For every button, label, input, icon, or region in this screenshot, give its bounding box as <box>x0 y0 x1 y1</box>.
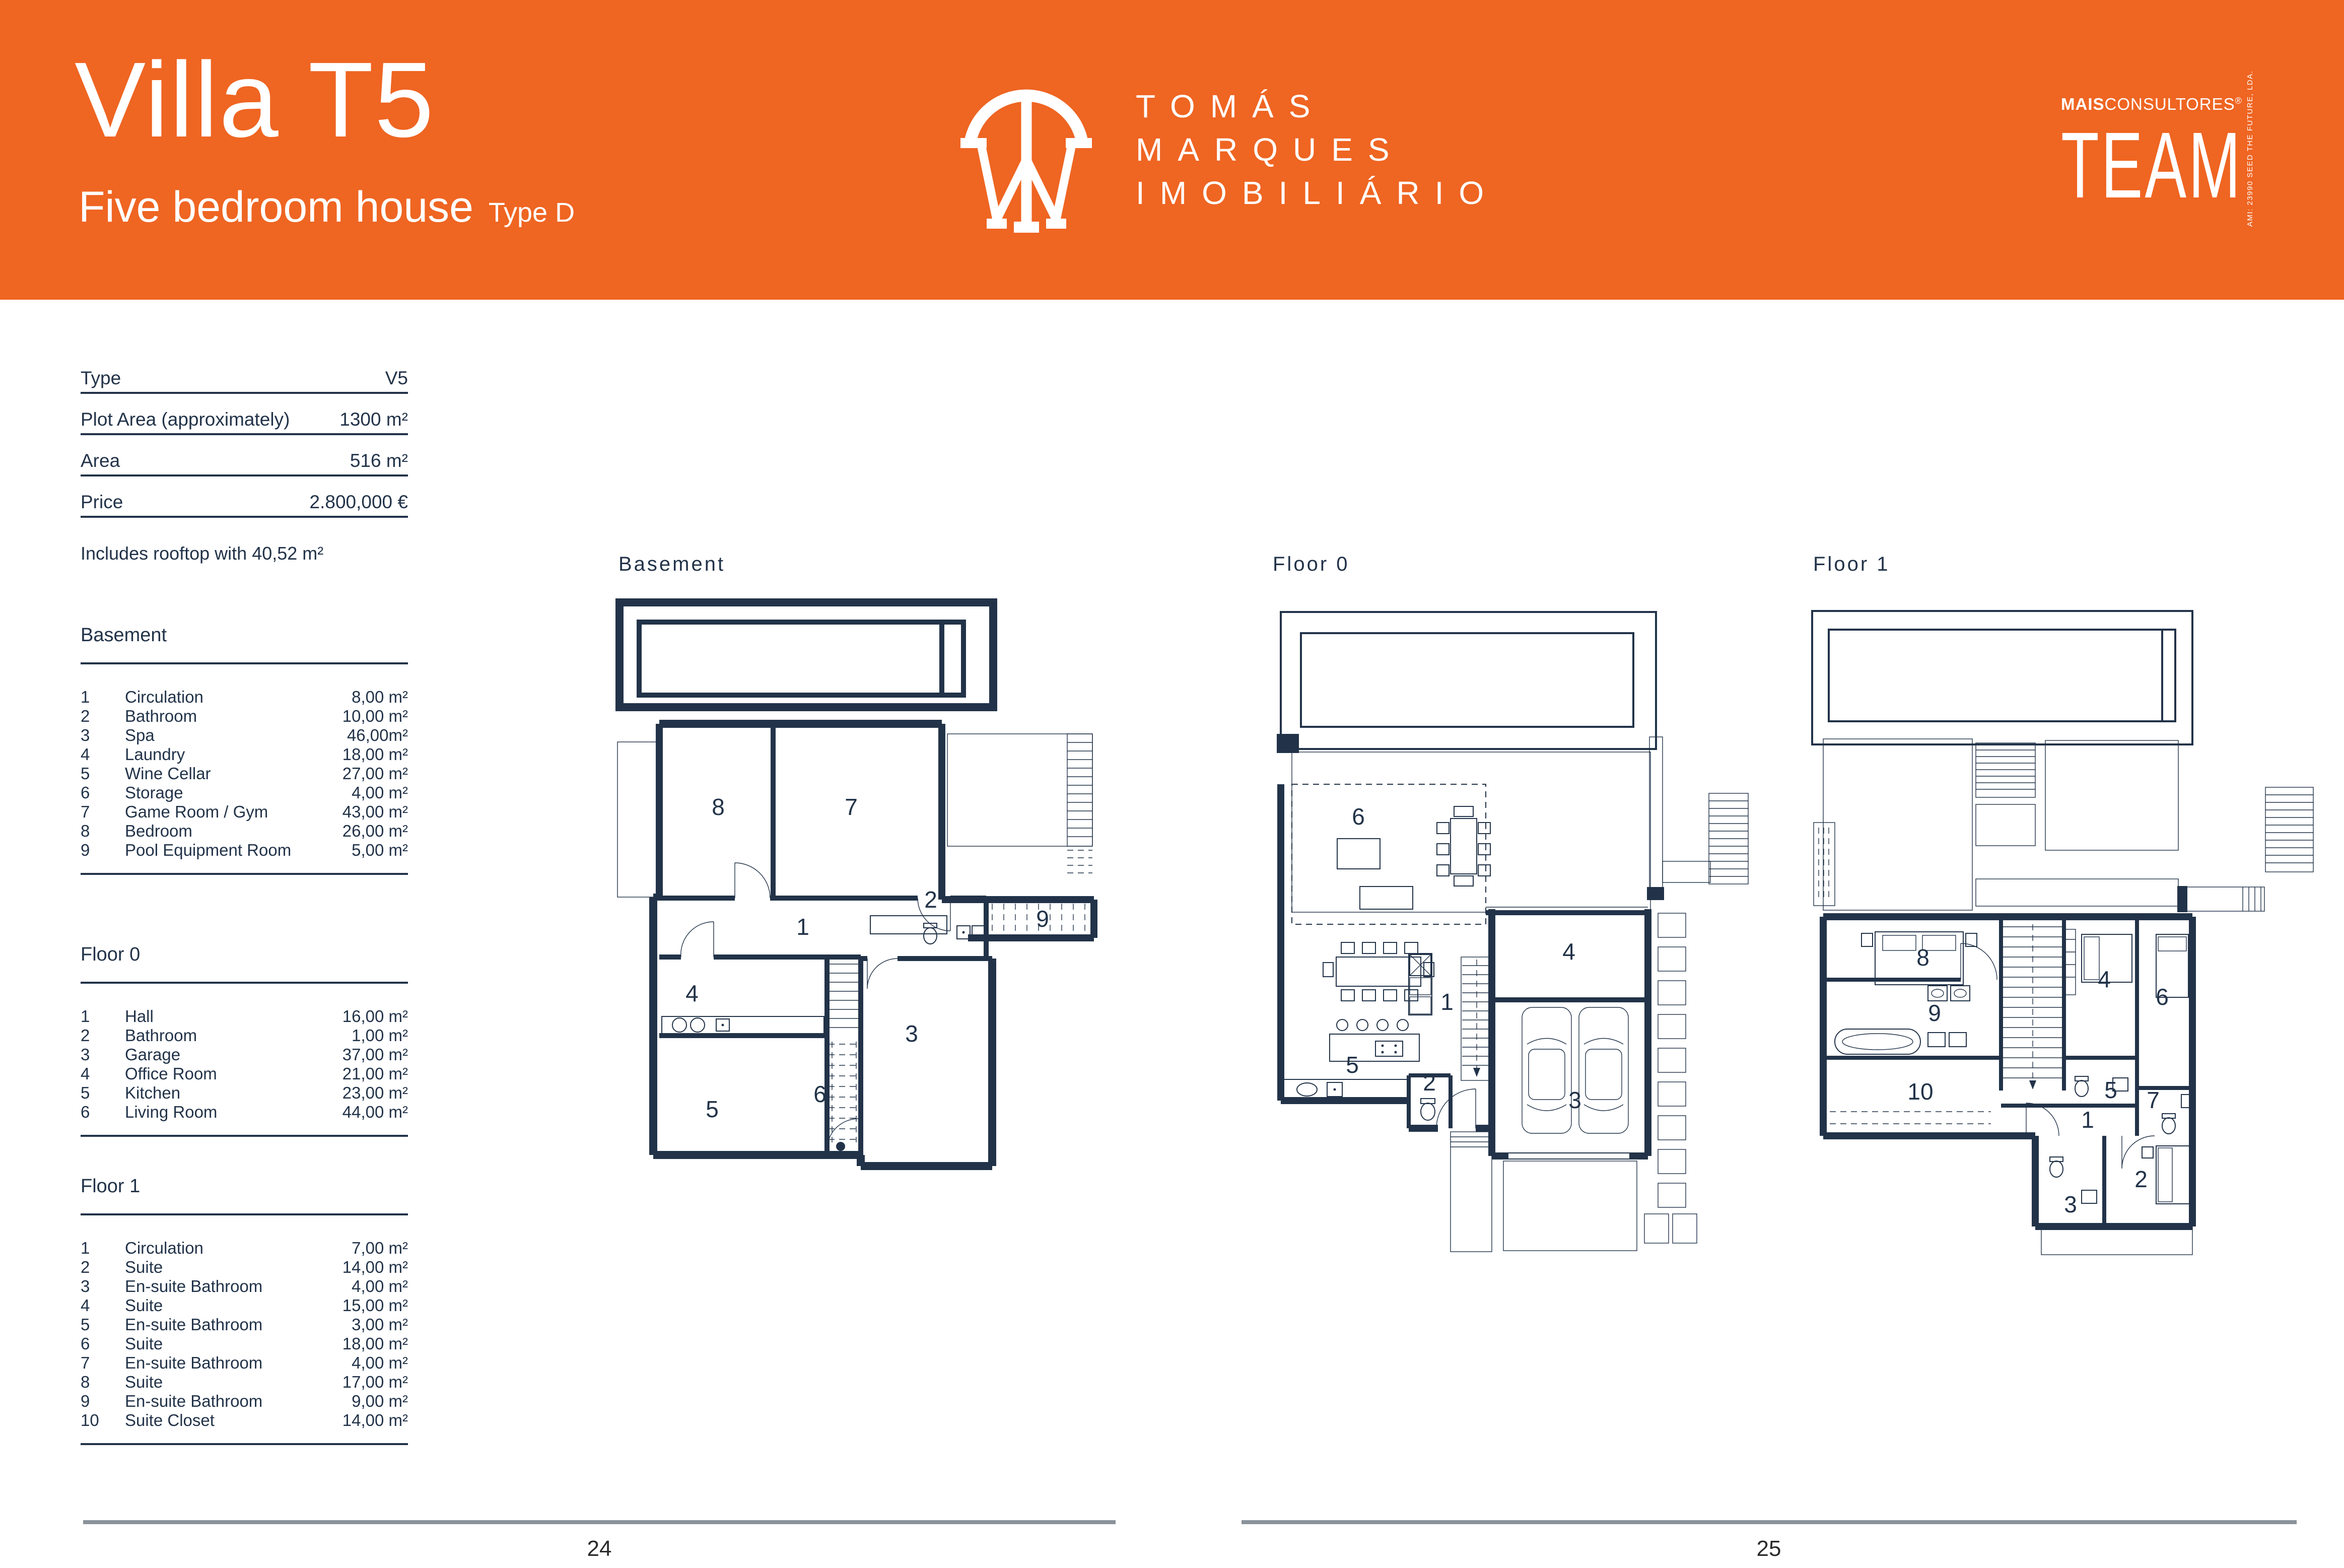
room-name: Kitchen <box>125 1083 342 1103</box>
room-row: 9 Pool Equipment Room 5,00 m² <box>81 841 408 860</box>
info-row: Plot Area (approximately) 1300 m² <box>81 394 408 435</box>
room-name: Hall <box>125 1007 342 1026</box>
room-number: 2 <box>81 1258 125 1277</box>
room-area: 16,00 m² <box>342 1007 408 1026</box>
room-number-label: 10 <box>1907 1078 1933 1105</box>
closet10 <box>1830 1112 1991 1124</box>
room-number-label: 8 <box>712 794 725 820</box>
room-number: 9 <box>81 841 125 860</box>
bathroom9-fixtures <box>1835 986 1970 1054</box>
room-number-label: 4 <box>685 980 699 1006</box>
stairs-icon <box>2003 924 2062 1089</box>
room-name: Suite <box>125 1258 342 1277</box>
floor0-room-list: 1 Hall 16,00 m² 2 Bathroom 1,00 m² 3 Gar… <box>81 1007 408 1137</box>
pool <box>1812 611 2192 744</box>
room-number: 1 <box>81 688 125 707</box>
room-number: 2 <box>81 1026 125 1045</box>
room-name: En-suite Bathroom <box>125 1353 352 1373</box>
floor0-floor-plan: 123456 <box>1277 607 1803 1282</box>
stairs-icon <box>827 957 861 1155</box>
room-area: 14,00 m² <box>342 1258 408 1277</box>
ami-vertical-text: AMI: 23990 SEED THE FUTURE, LDA. <box>2246 121 2254 227</box>
info-value: 1300 m² <box>339 409 408 430</box>
room-name: Spa <box>125 726 347 745</box>
room-name: En-suite Bathroom <box>125 1392 352 1411</box>
room-area: 15,00 m² <box>342 1296 408 1315</box>
room-number-label: 7 <box>2147 1087 2160 1113</box>
basement-room-list: 1 Circulation 8,00 m² 2 Bathroom 10,00 m… <box>81 688 408 875</box>
bathroom7-fixtures <box>2162 1095 2190 1134</box>
room-area: 43,00 m² <box>342 802 408 822</box>
room-number: 6 <box>81 1334 125 1353</box>
room-name: Wine Cellar <box>125 764 342 783</box>
room-number: 10 <box>81 1411 125 1430</box>
room-area: 4,00 m² <box>352 1353 408 1373</box>
room-name: Garage <box>125 1045 342 1064</box>
room-area: 46,00m² <box>347 726 408 745</box>
room-number-label: 6 <box>813 1081 826 1107</box>
page-subtitle: Five bedroom houseType D <box>79 185 575 229</box>
room-name: Laundry <box>125 745 342 764</box>
room-name: Suite <box>125 1334 342 1353</box>
section-floor0-title: Floor 0 <box>81 944 408 984</box>
section-basement: Basement 1 Circulation 8,00 m² 2 Bathroo… <box>81 625 408 875</box>
room-number-label: 1 <box>1440 989 1454 1015</box>
room-row: 8 Suite 17,00 m² <box>81 1373 408 1392</box>
info-value: 516 m² <box>350 450 408 471</box>
basement-floor-plan: 123456789 <box>615 598 1099 1188</box>
room-row: 5 Kitchen 23,00 m² <box>81 1083 408 1103</box>
room-name: Suite <box>125 1296 342 1315</box>
room-number-label: 4 <box>1562 938 1575 965</box>
page-number-right: 25 <box>1757 1536 1781 1561</box>
room-number: 6 <box>81 783 125 802</box>
room-number: 4 <box>81 1064 125 1083</box>
basement-plan-title: Basement <box>618 553 725 576</box>
footer-divider-right <box>1242 1520 2297 1524</box>
room-area: 23,00 m² <box>342 1083 408 1103</box>
brand-name: TOMÁS MARQUES IMOBILIÁRIO <box>1136 85 1499 215</box>
brand-line-2: MARQUES <box>1136 128 1499 171</box>
room-area: 8,00 m² <box>352 688 408 707</box>
room-name: Bedroom <box>125 822 342 841</box>
room-row: 5 Wine Cellar 27,00 m² <box>81 764 408 783</box>
room-area: 3,00 m² <box>352 1315 408 1334</box>
stepping-stones <box>1644 913 1697 1243</box>
car-icon <box>1579 1007 1628 1133</box>
room-row: 3 En-suite Bathroom 4,00 m² <box>81 1277 408 1296</box>
room-name: Living Room <box>125 1103 342 1122</box>
terrace-dining-table <box>1437 806 1490 886</box>
room-area: 26,00 m² <box>342 822 408 841</box>
brand-line-1: TOMÁS <box>1136 85 1499 128</box>
section-floor1-title: Floor 1 <box>81 1176 408 1215</box>
partner-name-bold: MAIS <box>2061 95 2105 113</box>
info-label: Plot Area (approximately) <box>81 409 290 430</box>
room-name: Bathroom <box>125 1026 352 1045</box>
room-number-label: 1 <box>2081 1107 2094 1133</box>
left-hatch-terrace <box>617 742 659 897</box>
type-tag: Type D <box>489 197 575 228</box>
room-number-label: 3 <box>905 1020 918 1047</box>
room-area: 37,00 m² <box>342 1045 408 1064</box>
room-number: 4 <box>81 1296 125 1315</box>
room-number-label: 3 <box>1568 1087 1581 1113</box>
room-number: 5 <box>81 1315 125 1334</box>
room-row: 5 En-suite Bathroom 3,00 m² <box>81 1315 408 1334</box>
room-number-label: 8 <box>1916 944 1929 971</box>
room-area: 14,00 m² <box>342 1411 408 1430</box>
page-title: Villa T5 <box>75 46 435 153</box>
living-room <box>1292 784 1486 924</box>
room-name: Suite Closet <box>125 1411 342 1430</box>
floor0-plan-title: Floor 0 <box>1273 553 1350 576</box>
footer-divider-left <box>83 1520 1116 1524</box>
room-row: 4 Office Room 21,00 m² <box>81 1064 408 1083</box>
info-value: 2.800,000 € <box>310 492 408 513</box>
room-number-label: 9 <box>1928 1000 1941 1026</box>
room-number: 1 <box>81 1239 125 1258</box>
room-number-label: 5 <box>1346 1052 1359 1078</box>
info-row: Price 2.800,000 € <box>81 476 408 518</box>
terrace-tiles <box>1814 739 2178 910</box>
room-number: 8 <box>81 822 125 841</box>
room-number: 5 <box>81 1083 125 1103</box>
room-area: 21,00 m² <box>342 1064 408 1083</box>
room-area: 18,00 m² <box>342 745 408 764</box>
header-band: Villa T5 Five bedroom houseType D <box>0 0 2344 300</box>
pool-lightwell <box>619 602 993 707</box>
room-number: 5 <box>81 764 125 783</box>
room-number: 4 <box>81 745 125 764</box>
room-number: 6 <box>81 1103 125 1122</box>
room-number-label: 1 <box>796 914 809 940</box>
room-number-label: 2 <box>924 887 937 913</box>
room-area: 18,00 m² <box>342 1334 408 1353</box>
room-number: 3 <box>81 1045 125 1064</box>
floor1-plan-title: Floor 1 <box>1813 553 1890 576</box>
room-row: 1 Hall 16,00 m² <box>81 1007 408 1026</box>
room-number: 1 <box>81 1007 125 1026</box>
room-name: En-suite Bathroom <box>125 1315 352 1334</box>
room-number-label: 2 <box>1423 1069 1436 1096</box>
room-number-label: 6 <box>2156 984 2169 1010</box>
side-stair-balcony <box>2177 787 2313 912</box>
info-label: Price <box>81 492 123 513</box>
registered-mark-icon: ® <box>2235 96 2242 106</box>
room-number-label: 3 <box>2064 1191 2077 1217</box>
floor1-floor-plan: 12345678910 <box>1810 607 2316 1282</box>
room-row: 2 Suite 14,00 m² <box>81 1258 408 1277</box>
subtitle-text: Five bedroom house <box>79 183 473 231</box>
room-row: 4 Laundry 18,00 m² <box>81 745 408 764</box>
room-number-label: 5 <box>2104 1077 2117 1103</box>
room-number-label: 6 <box>1352 803 1365 830</box>
info-label: Area <box>81 450 120 471</box>
room-row: 7 Game Room / Gym 43,00 m² <box>81 802 408 822</box>
room-number: 3 <box>81 726 125 745</box>
room-row: 3 Spa 46,00m² <box>81 726 408 745</box>
room-number-label: 4 <box>2098 966 2111 992</box>
room-name: Circulation <box>125 1239 352 1258</box>
section-floor1: Floor 1 1 Circulation 7,00 m² 2 Suite 14… <box>81 1176 408 1445</box>
page-number-left: 24 <box>587 1536 612 1561</box>
room-area: 7,00 m² <box>352 1239 408 1258</box>
team-wordmark: TEAM <box>2061 119 2237 213</box>
room-row: 1 Circulation 8,00 m² <box>81 688 408 707</box>
room-area: 4,00 m² <box>352 783 408 802</box>
partner-name: MAISCONSULTORES® <box>2061 95 2237 114</box>
room-name: Pool Equipment Room <box>125 841 352 860</box>
room-number: 8 <box>81 1373 125 1392</box>
room-row: 4 Suite 15,00 m² <box>81 1296 408 1315</box>
room-number: 2 <box>81 707 125 726</box>
suite2-furniture <box>2142 1146 2189 1204</box>
partner-name-rest: CONSULTORES <box>2105 95 2235 113</box>
room-row: 2 Bathroom 10,00 m² <box>81 707 408 726</box>
room-area: 27,00 m² <box>342 764 408 783</box>
balcony <box>2041 1226 2192 1255</box>
pool <box>1277 612 1656 753</box>
info-value: V5 <box>385 368 408 389</box>
section-basement-title: Basement <box>81 625 408 664</box>
room-name: En-suite Bathroom <box>125 1277 352 1296</box>
room-row: 1 Circulation 7,00 m² <box>81 1239 408 1258</box>
room-number: 9 <box>81 1392 125 1411</box>
info-row: Area 516 m² <box>81 435 408 476</box>
brochure-page: Villa T5 Five bedroom houseType D <box>0 0 2344 1568</box>
room-area: 9,00 m² <box>352 1392 408 1411</box>
room-area: 10,00 m² <box>342 707 408 726</box>
room-area: 5,00 m² <box>352 841 408 860</box>
room-row: 6 Storage 4,00 m² <box>81 783 408 802</box>
room-number-label: 5 <box>706 1096 719 1122</box>
room-name: Suite <box>125 1373 342 1392</box>
room-area: 17,00 m² <box>342 1373 408 1392</box>
room-row: 3 Garage 37,00 m² <box>81 1045 408 1064</box>
room-name: Game Room / Gym <box>125 802 342 822</box>
room-row: 10 Suite Closet 14,00 m² <box>81 1411 408 1430</box>
room-number-label: 9 <box>1036 906 1049 932</box>
room-row: 9 En-suite Bathroom 9,00 m² <box>81 1392 408 1411</box>
stairs-icon <box>1461 957 1492 1080</box>
room-area: 1,00 m² <box>352 1026 408 1045</box>
brand-line-3: IMOBILIÁRIO <box>1136 171 1499 215</box>
floor1-room-list: 1 Circulation 7,00 m² 2 Suite 14,00 m² 3… <box>81 1239 408 1445</box>
bathroom5-fixtures <box>2075 1076 2128 1097</box>
info-row: Type V5 <box>81 353 408 394</box>
info-table: Type V5 Plot Area (approximately) 1300 m… <box>81 353 408 518</box>
room-name: Office Room <box>125 1064 342 1083</box>
room-area: 44,00 m² <box>342 1103 408 1122</box>
room-name: Circulation <box>125 688 352 707</box>
room-number: 7 <box>81 1353 125 1373</box>
section-floor0: Floor 0 1 Hall 16,00 m² 2 Bathroom 1,00 … <box>81 944 408 1137</box>
room-number-label: 7 <box>845 794 858 820</box>
room-row: 6 Suite 18,00 m² <box>81 1334 408 1353</box>
room-number-label: 2 <box>2134 1166 2148 1192</box>
tm-monogram-icon <box>954 71 1098 237</box>
spa-room-walls <box>861 959 992 1166</box>
room-row: 6 Living Room 44,00 m² <box>81 1103 408 1122</box>
patio-hatch <box>947 734 1092 873</box>
room-number: 7 <box>81 802 125 822</box>
room-area: 4,00 m² <box>352 1277 408 1296</box>
laundry-fixtures <box>659 1016 827 1036</box>
info-label: Type <box>81 368 121 389</box>
room-row: 2 Bathroom 1,00 m² <box>81 1026 408 1045</box>
room-row: 8 Bedroom 26,00 m² <box>81 822 408 841</box>
office-garage-walls <box>1492 1000 1648 1251</box>
room-row: 7 En-suite Bathroom 4,00 m² <box>81 1353 408 1373</box>
room-name: Bathroom <box>125 707 342 726</box>
partner-logo: MAISCONSULTORES® TEAM AMI: 23990 SEED TH… <box>2061 95 2237 181</box>
rooftop-note: Includes rooftop with 40,52 m² <box>81 543 323 564</box>
car-icon <box>1522 1007 1571 1133</box>
room-number: 3 <box>81 1277 125 1296</box>
room-name: Storage <box>125 783 352 802</box>
